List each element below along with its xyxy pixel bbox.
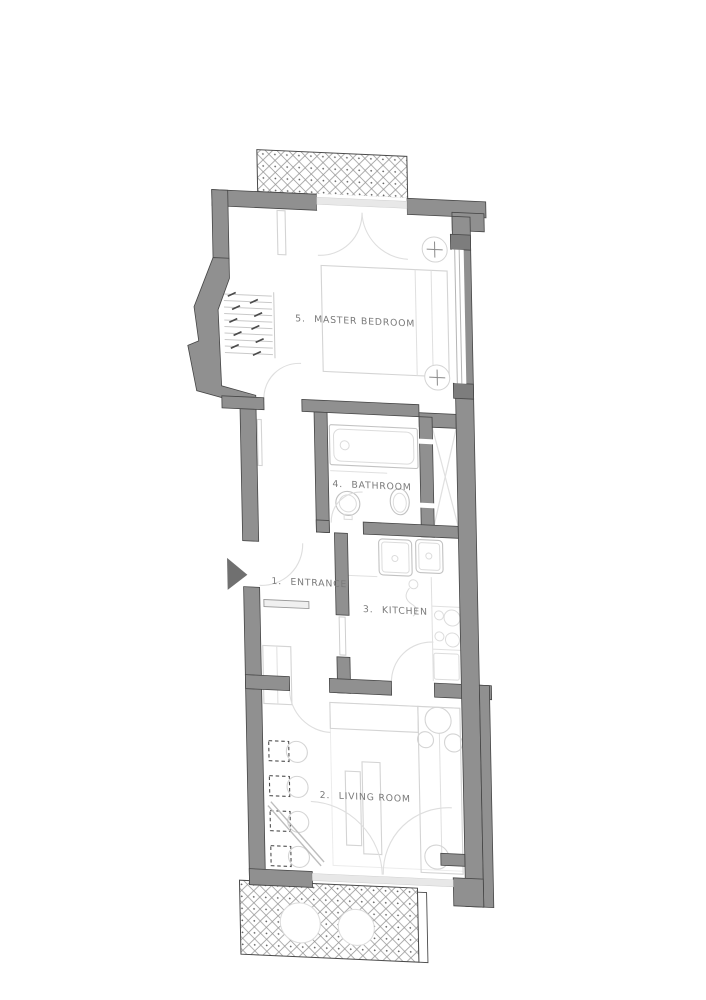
balcony-top-hatch <box>257 150 408 199</box>
wall-living-bottom-left <box>249 869 312 888</box>
kitchen-faucet <box>409 580 418 589</box>
balcony-door-arc-left <box>317 210 363 257</box>
entry-arrow-icon <box>227 558 248 591</box>
shaft-x-icon <box>432 427 458 526</box>
entrance-furniture <box>256 419 311 705</box>
dishwasher <box>434 653 460 680</box>
master-bedroom-furniture <box>223 206 450 408</box>
wall-mid-horizontal-b <box>329 678 391 695</box>
table-part <box>345 771 361 846</box>
balcony-end-wall <box>418 892 428 962</box>
wall-slit <box>418 439 433 445</box>
wall-hall-kitchen-a <box>334 533 349 616</box>
wardrobe-leaf <box>277 210 286 254</box>
room-label-kitchen: 3. KITCHEN <box>363 604 428 618</box>
balcony-top <box>257 150 408 199</box>
wall-mid-horizontal-a <box>245 675 289 691</box>
room-label-entrance: 1. ENTRANCE <box>271 576 347 590</box>
wall-slit <box>420 503 435 509</box>
wall-left-upper <box>212 190 229 261</box>
bathroom-fixtures <box>329 425 419 527</box>
kitchen-door-arc <box>391 640 435 685</box>
radiator-bay <box>224 290 275 358</box>
living-door-arc <box>290 691 331 733</box>
rug <box>330 702 463 871</box>
floor-plan-drawing: 5. MASTER BEDROOM 4. BATHROOM 1. ENTRANC… <box>0 0 706 1000</box>
wall-bedroom-bottom-a <box>222 396 264 410</box>
wall-bathroom-right <box>419 417 434 538</box>
wall-bathroom-bottom-b <box>363 522 458 538</box>
shoe-cabinet <box>264 600 309 609</box>
wall-bathroom-bottom-a <box>316 520 329 533</box>
window-stub-bottom <box>453 383 473 399</box>
window-stub-top <box>450 234 470 250</box>
wall-bay <box>186 256 256 407</box>
room-label-living-room: 2. LIVING ROOM <box>320 790 411 805</box>
tv-board <box>268 806 321 866</box>
wall-left-mid <box>240 403 259 542</box>
floor-plan-page: 5. MASTER BEDROOM 4. BATHROOM 1. ENTRANC… <box>0 0 706 1000</box>
wall-alcove-stub <box>441 853 465 866</box>
table-part <box>362 762 382 855</box>
balcony-bottom <box>239 880 427 962</box>
kitchen-sink-left <box>379 539 413 576</box>
sideboard-top <box>330 702 419 732</box>
bathtub <box>329 425 418 469</box>
balcony-door-arc-right <box>362 212 408 259</box>
pouf <box>425 707 452 734</box>
pouf <box>444 734 462 753</box>
living-room-furniture <box>266 690 466 879</box>
wall-left-lower <box>244 587 266 886</box>
bedroom-door-arc <box>263 362 302 402</box>
hall-mirror <box>257 419 262 465</box>
wall-living-bottom-right <box>453 878 484 907</box>
cross-circle-icon <box>422 236 448 262</box>
balcony-french-arc-right <box>382 805 453 878</box>
sliding-door-leaf <box>339 617 346 655</box>
stove <box>434 609 460 647</box>
pouf <box>417 731 433 748</box>
balcony-bottom-hatch <box>239 880 418 962</box>
wall-bathroom-left <box>314 412 329 533</box>
chairs <box>269 740 310 868</box>
room-label-bathroom: 4. BATHROOM <box>332 479 411 494</box>
